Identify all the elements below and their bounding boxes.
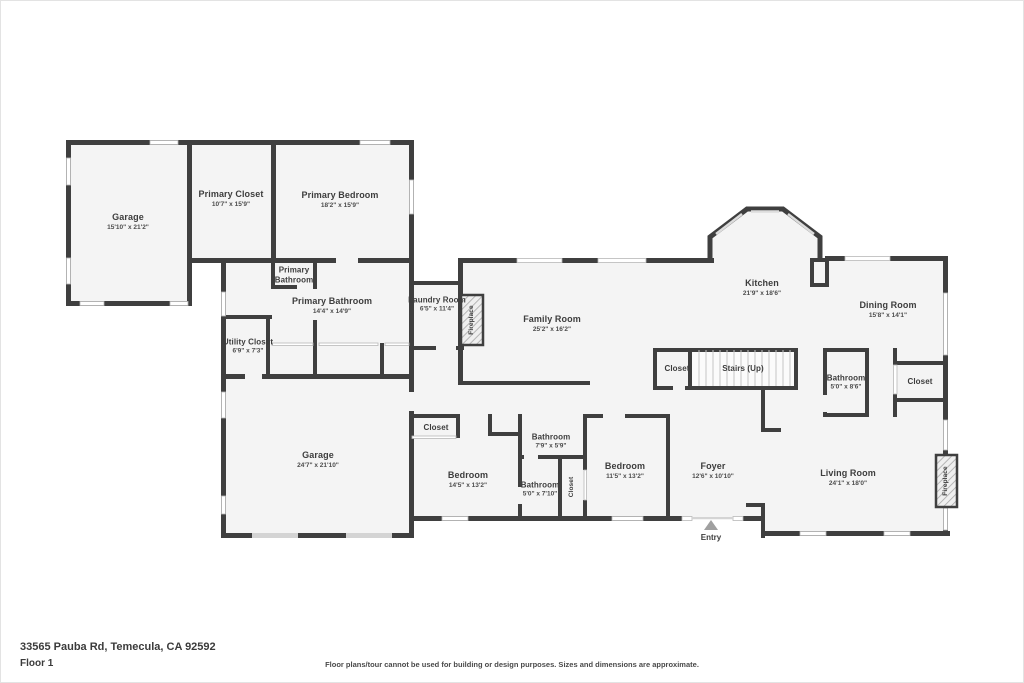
room-label-primary-bathroom: Primary Bathroom 14'4" x 14'9" [292,296,372,316]
room-label-closet-bedroom1: Closet [423,423,448,433]
address-text: 33565 Pauba Rd, Temecula, CA 92592 [20,641,216,653]
room-label-closet-mid-right: Closet [907,377,932,387]
entry-arrow-icon [704,520,718,530]
room-label-family-room: Family Room 25'2" x 16'2" [523,314,581,334]
room-label-bedroom2: Bedroom 11'5" x 13'2" [605,461,645,481]
room-label-fireplace-left: Fireplace [468,305,476,334]
room-label-kitchen: Kitchen 21'9" x 18'6" [743,278,781,298]
floor-plan-canvas [0,0,1024,683]
room-label-primary-bathroom-wc: Primary Bathroom [267,266,321,287]
room-label-closet-vertical: Closet [568,477,576,497]
room-label-laundry-room: Laundry Room 6'5" x 11'4" [408,296,466,315]
room-label-stairs-up: Stairs (Up) [722,364,764,374]
disclaimer-text: Floor plans/tour cannot be used for buil… [0,660,1024,669]
room-label-bathroom-bedroom1: Bathroom 5'0" x 7'10" [521,481,560,500]
room-label-garage-lower: Garage 24'7" x 21'10" [297,450,339,470]
room-label-utility-closet: Utility Closet 6'9" x 7'3" [223,338,273,357]
room-label-dining-room: Dining Room 15'8" x 14'1" [859,300,916,320]
room-label-primary-closet: Primary Closet 10'7" x 15'9" [199,189,264,209]
entry-label: Entry [701,533,721,542]
room-label-bathroom-hall: Bathroom 7'9" x 5'9" [532,433,571,452]
floor-plan-page: Garage 15'10" x 21'2" Primary Closet 10'… [0,0,1024,683]
room-label-bathroom-mid: Bathroom 5'0" x 8'6" [827,374,866,393]
room-label-bedroom1: Bedroom 14'5" x 13'2" [448,470,488,490]
room-label-garage-upper: Garage 15'10" x 21'2" [107,212,149,232]
room-label-primary-bedroom: Primary Bedroom 18'2" x 15'9" [301,190,378,210]
room-label-living-room: Living Room 24'1" x 18'0" [820,468,876,488]
room-label-closet-stairs: Closet [664,364,689,374]
room-label-foyer: Foyer 12'6" x 10'10" [692,461,734,481]
room-label-fireplace-right: Fireplace [942,466,950,495]
